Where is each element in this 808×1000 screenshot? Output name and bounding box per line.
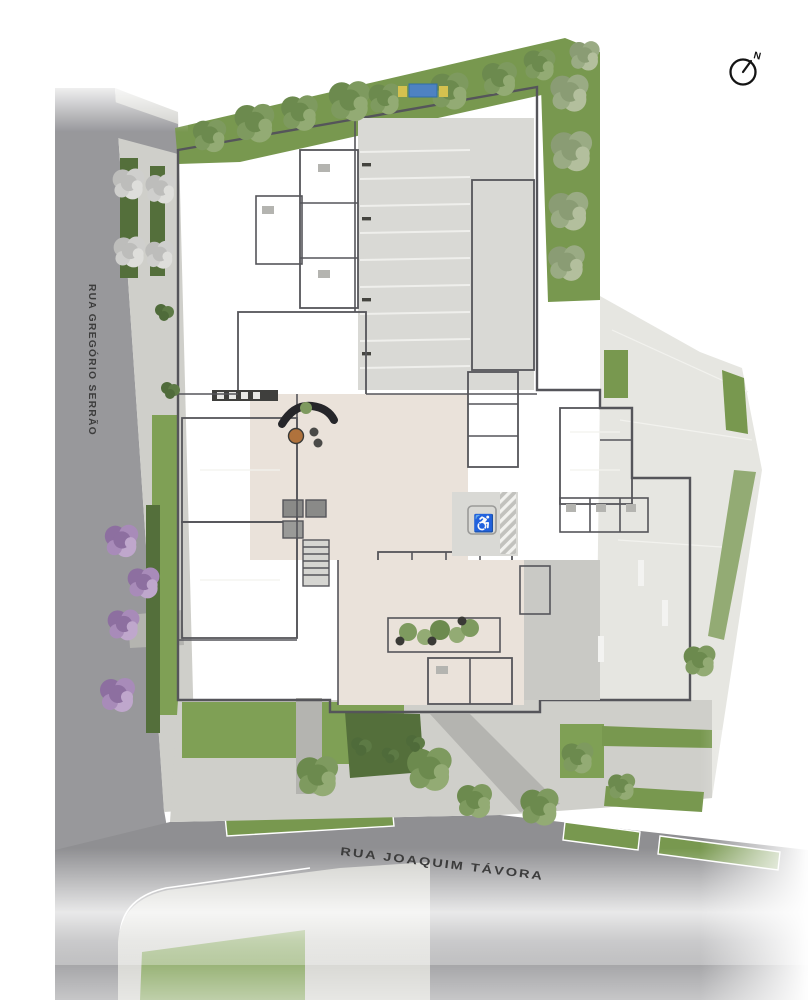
- street-label-gregorio-serrao: RUA GREGÓRIO SERRÃO: [86, 284, 99, 436]
- courtyard-east-floor: [524, 560, 600, 700]
- hatched-strip: [500, 492, 516, 554]
- accessible-parking-icon: ♿: [473, 513, 494, 533]
- tree: [569, 41, 599, 70]
- hedge-left-low: [146, 505, 160, 733]
- lounge-chair: [289, 429, 304, 444]
- tree: [457, 784, 492, 818]
- tree: [548, 245, 585, 281]
- site-plan: ♿: [0, 0, 808, 1000]
- tree: [524, 49, 556, 80]
- tree: [369, 83, 401, 114]
- lobby-plant: [300, 402, 312, 414]
- tree: [193, 120, 226, 152]
- side-table: [310, 428, 319, 437]
- tree: [235, 104, 275, 143]
- tree: [100, 678, 135, 712]
- tree: [684, 645, 716, 676]
- tree: [114, 236, 146, 267]
- north-label: N: [752, 50, 762, 62]
- tree: [549, 192, 589, 231]
- tree: [145, 174, 175, 203]
- site-plan-drawing: ♿: [0, 0, 808, 1000]
- garage-ramp-center: [238, 312, 366, 395]
- tree: [550, 75, 588, 112]
- tree: [113, 168, 145, 199]
- tree: [108, 609, 140, 640]
- tree: [520, 789, 558, 826]
- tree: [551, 131, 592, 171]
- tree: [128, 567, 160, 598]
- plaza-hedge-a: [604, 350, 628, 398]
- rooms-core: [256, 150, 358, 308]
- tree: [482, 62, 517, 96]
- parking-area: [358, 118, 534, 390]
- plaza-hedge-b: [722, 370, 748, 434]
- tree: [145, 241, 174, 269]
- tree: [407, 748, 452, 791]
- tree: [281, 95, 318, 131]
- tree: [562, 742, 594, 773]
- tree: [105, 525, 138, 557]
- tree: [608, 774, 635, 800]
- stairs: [303, 540, 329, 586]
- side-table: [314, 439, 323, 448]
- accessible-parking: ♿: [452, 492, 518, 556]
- north-arrow: N: [731, 50, 762, 84]
- south-lawn-a: [182, 702, 300, 758]
- tree: [297, 756, 338, 796]
- tree: [329, 81, 370, 121]
